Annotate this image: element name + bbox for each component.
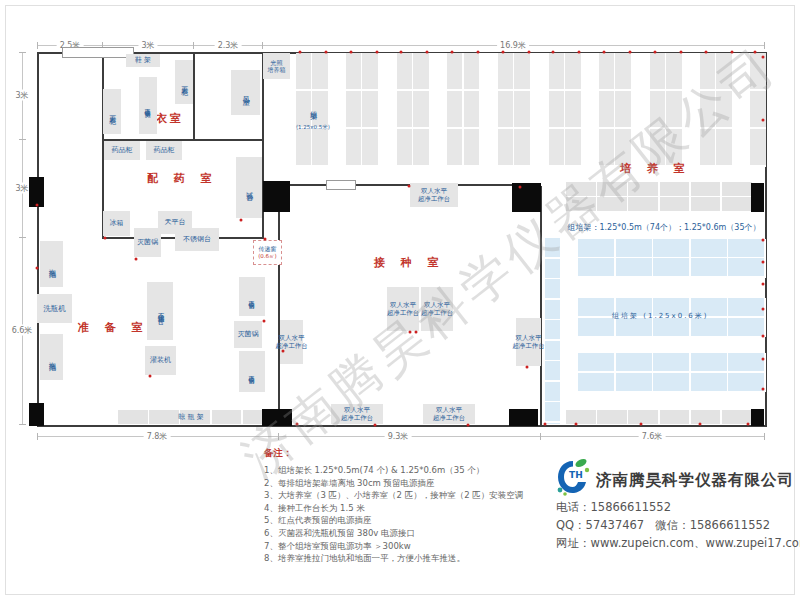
clean-bench: 双人水平 超净工作台 xyxy=(410,183,458,207)
power-outlet-dot xyxy=(408,185,411,188)
sterilizer: 灭菌锅 xyxy=(234,321,262,348)
filling-machine: 灌装机 xyxy=(145,346,176,375)
qq-number: 57437467 xyxy=(586,518,645,532)
dim-tick xyxy=(37,433,38,440)
power-outlet-dot xyxy=(467,424,470,427)
clean-bench-line1: 双人水平 xyxy=(436,406,462,414)
power-outlet-dot xyxy=(762,283,765,286)
drying-rack-label: 晾 瓶 架 xyxy=(118,411,264,424)
phone-label: 电话： xyxy=(556,500,591,514)
power-outlet-dot xyxy=(526,366,529,369)
qq-wechat-line: QQ：57437467 微信：15866611552 xyxy=(556,518,770,533)
pass-window-size: (0.6㎡) xyxy=(258,253,277,260)
power-outlet-dot xyxy=(36,204,39,207)
wall-vertical xyxy=(193,54,195,140)
pass-window-label: 传递窗 xyxy=(259,245,277,253)
dim-bottom-2: 9.3米 xyxy=(385,431,412,442)
door xyxy=(751,183,764,212)
clean-bench-line1: 双人水平 xyxy=(390,301,416,309)
dim-bottom-3: 7.6米 xyxy=(639,431,666,442)
clean-bench: 双人水平 超净工作台 xyxy=(280,320,303,364)
dim-top-2: 3米 xyxy=(138,40,157,51)
clean-bench-line2: 超净工作台 xyxy=(421,309,454,317)
rack-spec-annotation: 组培架：1.25*0.5m（74个）；1.25*0.6m（35个） xyxy=(544,222,784,233)
dim-tick xyxy=(764,42,765,49)
power-outlet-dot xyxy=(731,51,734,54)
window xyxy=(326,180,356,190)
qq-label: QQ： xyxy=(556,518,586,532)
website-line: 网址：www.zupeicn.com、www.zupei17.com xyxy=(556,536,800,551)
power-outlet-dot xyxy=(451,51,454,54)
door xyxy=(29,403,44,426)
power-outlet-dot xyxy=(762,388,765,391)
power-outlet-dot xyxy=(135,258,138,261)
power-outlet-dot xyxy=(654,51,657,54)
power-outlet-dot xyxy=(264,238,267,241)
dim-tick xyxy=(262,42,263,49)
dim-tick xyxy=(19,424,26,425)
power-outlet-dot xyxy=(762,335,765,338)
door xyxy=(509,409,538,426)
power-outlet-dot xyxy=(374,424,377,427)
clean-bench: 双人水平 超净工作台 xyxy=(516,318,541,366)
room-label-culture: 培 养 室 xyxy=(620,161,691,176)
clean-bench-line1: 双人水平 xyxy=(421,187,447,195)
culture-rack-strip xyxy=(296,53,766,167)
note-item: 5、红点代表预留的电源插座 xyxy=(264,514,554,527)
room-label-inoculation: 接 种 室 xyxy=(374,255,445,270)
power-outlet-dot xyxy=(149,375,152,378)
dim-tick xyxy=(764,433,765,440)
power-outlet-dot xyxy=(640,423,643,426)
websites: www.zupeicn.com、www.zupei17.com xyxy=(591,536,800,550)
tc-rack-size-label: (1.25x0.5米) xyxy=(286,124,340,131)
logo-text: TH xyxy=(569,470,583,480)
locker: 更衣柜 xyxy=(103,89,121,134)
company-logo: TH xyxy=(554,456,592,498)
clean-bench: 双人水平 超净工作台 xyxy=(387,287,419,331)
dim-bottom-1: 7.8米 xyxy=(144,431,171,442)
power-outlet-dot xyxy=(699,423,702,426)
room-label-prep: 准 备 室 xyxy=(78,320,149,335)
dim-tick xyxy=(540,433,541,440)
dim-left-1: 3米 xyxy=(12,90,31,101)
dim-tick xyxy=(19,52,26,53)
steel-table: 不锈钢台 xyxy=(239,351,265,392)
gray-rack-grid xyxy=(566,182,753,213)
medicine-cabinet: 药品柜 xyxy=(146,141,182,160)
blue-rack-row xyxy=(578,353,766,392)
gray-rack-bottom xyxy=(566,410,753,425)
dim-tick xyxy=(37,42,38,49)
dim-tick xyxy=(19,139,26,140)
window xyxy=(62,47,134,58)
power-outlet-dot xyxy=(477,51,480,54)
clean-bench-line2: 超净工作台 xyxy=(387,309,420,317)
pass-window: 传递窗 (0.6㎡) xyxy=(253,240,282,265)
note-item: 3、大培养室（3 匹）、小培养室（2 匹），接种室（2 匹）安装空调 xyxy=(264,489,554,502)
power-outlet-dot xyxy=(762,358,765,361)
clean-bench-line2: 超净工作台 xyxy=(341,414,374,422)
clean-bench-line1: 双人水平 xyxy=(516,334,542,342)
note-item: 7、整个组培室预留电源功率 ＞300kw xyxy=(264,540,554,553)
clean-bench: 双人水平 超净工作台 xyxy=(421,287,453,331)
power-outlet-dot xyxy=(762,239,765,242)
power-outlet-dot xyxy=(575,423,578,426)
tc-rack-text: 组培架 xyxy=(612,312,639,320)
note-item: 2、每排组培架靠墙离地 30cm 预留电源插座 xyxy=(264,477,554,490)
clean-bench-line2: 超净工作台 xyxy=(512,342,545,350)
power-outlet-dot xyxy=(544,423,547,426)
dim-line-left xyxy=(22,52,23,425)
clean-bench-line2: 超净工作台 xyxy=(433,414,466,422)
power-outlet-dot xyxy=(426,51,429,54)
power-outlet-dot xyxy=(578,51,581,54)
clean-bench-line1: 双人水平 xyxy=(279,334,305,342)
power-outlet-dot xyxy=(502,51,505,54)
light-incubator-line2: 培养箱 xyxy=(268,66,286,73)
wall-vertical xyxy=(278,184,280,425)
wechat-number: 15866611552 xyxy=(690,518,770,532)
test-bench: 试验台 xyxy=(236,157,262,218)
air-shower: 风淋室 xyxy=(231,70,260,115)
power-outlet-dot xyxy=(376,51,379,54)
power-outlet-dot xyxy=(36,267,39,270)
phone-line: 电话：15866611552 xyxy=(556,500,671,515)
power-outlet-dot xyxy=(762,261,765,264)
power-outlet-dot xyxy=(680,51,683,54)
medicine-cabinet: 药品柜 xyxy=(104,141,140,160)
power-outlet-dot xyxy=(240,219,243,222)
power-outlet-dot xyxy=(415,331,418,334)
tc-rack-label: 组培架 xyxy=(306,86,320,126)
power-outlet-dot xyxy=(705,51,708,54)
blue-rack-vertical xyxy=(545,238,560,424)
light-incubator-line1: 光照 xyxy=(271,59,283,66)
power-outlet-dot xyxy=(400,51,403,54)
power-outlet-dot xyxy=(350,51,353,54)
dim-tick xyxy=(278,433,279,440)
floor-plan-page: 2.5米 3米 2.3米 16.9米 3米 3米 6.6米 7.8米 9.3米 … xyxy=(0,0,800,600)
door xyxy=(751,409,764,426)
clean-bench-line1: 双人水平 xyxy=(424,301,450,309)
web-label: 网址： xyxy=(556,536,591,550)
power-outlet-dot xyxy=(762,56,765,59)
power-outlet-dot xyxy=(754,51,757,54)
steel-table: 不锈钢台 xyxy=(175,228,219,251)
power-outlet-dot xyxy=(603,51,606,54)
note-item: 4、接种工作台长为 1.5 米 xyxy=(264,502,554,515)
bottle-washer: 洗瓶机 xyxy=(37,294,72,323)
wall-vertical xyxy=(540,186,542,425)
power-outlet-dot xyxy=(747,423,750,426)
power-outlet-dot xyxy=(528,51,531,54)
power-outlet-dot xyxy=(762,308,765,311)
power-outlet-dot xyxy=(409,331,412,334)
company-name: 济南腾昊科学仪器有限公司 xyxy=(596,470,794,491)
steel-worktable: 不锈钢工作台 xyxy=(147,282,173,340)
clean-bench-line2: 超净工作台 xyxy=(275,342,308,350)
power-outlet-dot xyxy=(104,237,107,240)
power-outlet-dot xyxy=(325,51,328,54)
dim-left-3: 6.6米 xyxy=(9,325,36,336)
sterilizer: 灭菌锅 xyxy=(134,228,161,257)
fridge: 冰箱 xyxy=(103,211,130,236)
clean-bench: 双人水平 超净工作台 xyxy=(423,404,475,424)
soak-pool: 泡瓶池 xyxy=(40,241,63,287)
room-label-dispensing: 配 药 室 xyxy=(147,171,218,186)
door xyxy=(263,181,290,212)
clean-bench: 双人水平 超净工作台 xyxy=(331,404,383,424)
door xyxy=(29,177,44,207)
power-outlet-dot xyxy=(762,119,765,122)
door xyxy=(262,409,292,426)
notes-block: 备注： 1、组培架长 1.25*0.5m(74 个) & 1.25*0.6m（3… xyxy=(264,447,554,565)
clean-bench-line2: 超净工作台 xyxy=(418,195,451,203)
note-item: 6、灭菌器和洗瓶机预留 380v 电源接口 xyxy=(264,527,554,540)
light-incubator: 光照 培养箱 xyxy=(263,53,290,79)
wechat-label: 微信： xyxy=(655,518,690,532)
power-outlet-dot xyxy=(519,186,522,189)
blue-rack-row xyxy=(578,239,766,278)
power-outlet-dot xyxy=(629,51,632,54)
soak-pool: 泡瓶池 xyxy=(40,334,63,380)
dim-top-4: 16.9米 xyxy=(497,40,529,51)
phone-number: 15866611552 xyxy=(591,500,671,514)
blue-rack-label: 组培架 (1.25x0.6米) xyxy=(612,311,709,321)
dim-top-3: 2.3米 xyxy=(215,40,242,51)
power-outlet-dot xyxy=(296,423,299,426)
shoe-rack: 鞋 架 xyxy=(126,54,160,67)
dim-tick xyxy=(193,42,194,49)
power-outlet-dot xyxy=(282,350,285,353)
tc-rack-size-text: (1.25x0.6米) xyxy=(643,312,708,320)
power-outlet-dot xyxy=(263,320,266,323)
notes-title: 备注： xyxy=(264,447,554,460)
door xyxy=(512,183,541,212)
clean-bench-line1: 双人水平 xyxy=(344,406,370,414)
steel-bench: 不锈钢条凳 xyxy=(139,77,157,134)
dim-tick xyxy=(19,237,26,238)
power-outlet-dot xyxy=(552,51,555,54)
locker: 更衣柜 xyxy=(175,60,193,104)
steel-table: 不锈钢台 xyxy=(239,277,265,316)
note-item: 1、组培架长 1.25*0.5m(74 个) & 1.25*0.6m（35 个） xyxy=(264,464,554,477)
power-outlet-dot xyxy=(299,51,302,54)
note-item: 8、培养室推拉门地轨和地面一平，方便小推车推送。 xyxy=(264,552,554,565)
